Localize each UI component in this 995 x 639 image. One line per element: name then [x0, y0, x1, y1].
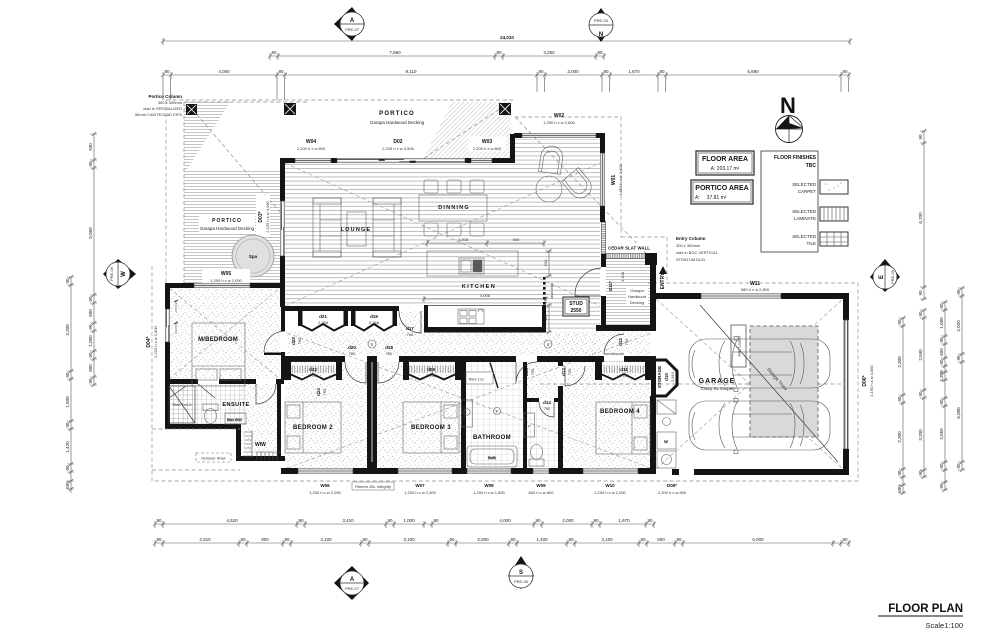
svg-text:500: 500 — [897, 485, 902, 493]
svg-text:6,000: 6,000 — [956, 407, 961, 419]
svg-text:d14: d14 — [543, 400, 551, 405]
svg-text:4,520: 4,520 — [226, 518, 238, 523]
svg-text:3,410: 3,410 — [342, 518, 354, 523]
svg-text:900: 900 — [513, 237, 520, 242]
svg-text:TILE: TILE — [806, 241, 816, 246]
svg-text:W07: W07 — [415, 483, 425, 488]
svg-text:450: 450 — [543, 314, 548, 321]
svg-text:90: 90 — [156, 537, 162, 542]
svg-text:S: S — [547, 342, 550, 347]
svg-text:1,400: 1,400 — [536, 537, 548, 542]
svg-text:90: 90 — [88, 161, 93, 167]
svg-text:BATHROOM: BATHROOM — [473, 435, 511, 441]
svg-text:2,300: 2,300 — [897, 431, 902, 443]
svg-text:d18: d18 — [385, 345, 393, 350]
svg-text:1,200 h x w 2,090: 1,200 h x w 2,090 — [309, 490, 341, 495]
svg-text:2,768: 2,768 — [318, 320, 329, 325]
svg-text:SELECTED: SELECTED — [792, 182, 817, 187]
svg-text:d19: d19 — [370, 314, 378, 319]
svg-text:90: 90 — [647, 518, 653, 523]
svg-text:Bsn 900: Bsn 900 — [461, 405, 466, 420]
svg-text:PRE-07: PRE-07 — [345, 586, 360, 591]
svg-text:CARPET: CARPET — [798, 189, 817, 194]
svg-text:d13: d13 — [561, 368, 566, 376]
svg-text:4,000: 4,000 — [499, 518, 511, 523]
svg-text:600: 600 — [543, 259, 548, 266]
svg-text:90: 90 — [640, 537, 646, 542]
svg-text:2,768: 2,768 — [369, 320, 380, 325]
svg-text:2,760: 2,760 — [308, 373, 319, 378]
svg-text:D02: D02 — [393, 139, 402, 145]
svg-text:4,006: 4,006 — [480, 293, 491, 298]
svg-text:90: 90 — [842, 69, 848, 74]
svg-text:90: 90 — [510, 537, 516, 542]
svg-text:580 h x w 2,800: 580 h x w 2,800 — [741, 287, 770, 292]
svg-text:2,225 h x w 3,060: 2,225 h x w 3,060 — [265, 200, 270, 232]
svg-text:A: A — [350, 577, 355, 583]
svg-text:S: S — [519, 570, 523, 576]
svg-text:3,100: 3,100 — [601, 537, 613, 542]
svg-text:90: 90 — [278, 69, 284, 74]
svg-text:clad in BGC VERTICAL: clad in BGC VERTICAL — [676, 250, 719, 255]
svg-text:ENSUITE: ENSUITE — [222, 402, 249, 408]
svg-text:760: 760 — [386, 351, 393, 356]
svg-text:Bath: Bath — [488, 455, 496, 460]
svg-text:1,200 h x w 2,000: 1,200 h x w 2,000 — [210, 278, 242, 283]
svg-text:1,208: 1,208 — [458, 237, 469, 242]
svg-text:STRATUM DUO: STRATUM DUO — [676, 257, 705, 262]
svg-text:D04*: D04* — [146, 336, 152, 347]
svg-text:90: 90 — [918, 134, 923, 140]
svg-text:d15: d15 — [524, 368, 529, 376]
svg-text:d17: d17 — [406, 326, 414, 331]
svg-text:M/BEDROOM: M/BEDROOM — [198, 337, 238, 343]
svg-text:7,860: 7,860 — [389, 50, 401, 55]
svg-text:W10: W10 — [605, 483, 615, 488]
svg-text:600: 600 — [657, 537, 665, 542]
svg-text:90: 90 — [939, 483, 944, 489]
svg-text:90: 90 — [65, 278, 70, 284]
svg-text:90: 90 — [387, 518, 393, 523]
svg-text:Outdoor Shwr: Outdoor Shwr — [201, 456, 226, 461]
svg-text:1,200 h x w 2,000: 1,200 h x w 2,000 — [594, 490, 626, 495]
svg-text:90: 90 — [603, 69, 609, 74]
svg-text:2,590: 2,590 — [918, 349, 923, 361]
svg-text:clad in SPECIALIZED: clad in SPECIALIZED — [143, 106, 182, 111]
svg-text:5,060: 5,060 — [88, 227, 93, 239]
svg-text:Decking: Decking — [630, 300, 644, 305]
svg-text:A: A — [350, 18, 355, 24]
svg-text:90: 90 — [897, 319, 902, 325]
svg-text:1,420: 1,420 — [65, 441, 70, 453]
svg-text:90: 90 — [156, 518, 162, 523]
svg-text:760: 760 — [322, 388, 327, 395]
svg-text:2,020: 2,020 — [956, 320, 961, 332]
svg-text:2,910: 2,910 — [199, 537, 211, 542]
svg-text:6,690: 6,690 — [747, 69, 759, 74]
svg-text:Spa: Spa — [249, 254, 258, 259]
svg-text:1,000: 1,000 — [88, 335, 93, 347]
svg-text:W: W — [121, 271, 127, 277]
svg-text:Tiled 1x1.6: Tiled 1x1.6 — [172, 402, 192, 407]
svg-text:2,225 h x w 4,506: 2,225 h x w 4,506 — [382, 146, 414, 151]
svg-text:Bsn 750: Bsn 750 — [523, 417, 528, 432]
svg-text:STUD: STUD — [569, 301, 583, 307]
svg-text:S: S — [371, 342, 374, 347]
svg-text:2,760: 2,760 — [426, 373, 437, 378]
svg-text:LAMINATE: LAMINATE — [794, 216, 816, 221]
svg-text:W06: W06 — [320, 483, 330, 488]
svg-text:90: 90 — [956, 355, 961, 361]
svg-text:1,600: 1,600 — [65, 396, 70, 408]
svg-text:1,000: 1,000 — [939, 317, 944, 329]
svg-text:d20: d20 — [348, 345, 356, 350]
svg-text:2,000: 2,000 — [562, 518, 574, 523]
svg-text:90: 90 — [918, 290, 923, 296]
svg-text:SELECTED: SELECTED — [792, 234, 817, 239]
svg-text:90: 90 — [676, 537, 682, 542]
svg-text:GARAGE: GARAGE — [699, 378, 736, 385]
svg-text:4,000: 4,000 — [218, 69, 230, 74]
svg-text:1,670: 1,670 — [618, 518, 630, 523]
svg-text:stud wall: stud wall — [549, 283, 554, 299]
svg-text:90: 90 — [164, 69, 170, 74]
svg-text:90: 90 — [65, 372, 70, 378]
svg-text:2,050: 2,050 — [939, 428, 944, 440]
svg-text:90: 90 — [535, 518, 541, 523]
svg-text:2,300: 2,300 — [897, 356, 902, 368]
svg-text:760: 760 — [544, 406, 551, 411]
svg-text:90: 90 — [918, 470, 923, 476]
svg-text:W02: W02 — [554, 113, 565, 119]
svg-text:90: 90 — [362, 537, 368, 542]
svg-text:DINNING: DINNING — [438, 205, 470, 211]
svg-text:FLOOR FINISHES: FLOOR FINISHES — [774, 155, 817, 161]
svg-text:800 h x w 600: 800 h x w 600 — [529, 490, 555, 495]
svg-text:90: 90 — [939, 303, 944, 309]
svg-text:E: E — [879, 275, 885, 279]
svg-text:D11*: D11* — [608, 281, 613, 291]
svg-text:90: 90 — [284, 537, 290, 542]
svg-text:90: 90 — [298, 518, 304, 523]
svg-text:3,100: 3,100 — [403, 537, 415, 542]
svg-text:90: 90 — [88, 352, 93, 358]
svg-text:W: W — [664, 439, 668, 444]
svg-text:2,225 h x w 2,800: 2,225 h x w 2,800 — [153, 325, 158, 357]
svg-text:PORTICO: PORTICO — [212, 218, 242, 224]
svg-text:KITCHEN: KITCHEN — [462, 284, 496, 290]
svg-text:90: 90 — [956, 463, 961, 469]
svg-text:2550: 2550 — [570, 308, 581, 314]
svg-text:N: N — [599, 32, 603, 38]
svg-text:BEDROOM 3: BEDROOM 3 — [411, 425, 451, 431]
svg-text:90: 90 — [842, 537, 848, 542]
svg-text:d24: d24 — [316, 388, 321, 396]
svg-text:790: 790 — [624, 338, 629, 345]
svg-text:1,670: 1,670 — [628, 69, 640, 74]
svg-text:Attic Ladder: Attic Ladder — [737, 335, 742, 357]
svg-text:Tiled 1x1: Tiled 1x1 — [468, 377, 485, 382]
svg-text:d09: d09 — [427, 367, 435, 372]
svg-text:90: 90 — [88, 324, 93, 330]
svg-text:d23: d23 — [291, 337, 296, 345]
svg-text:Crazy XL Carpet: Crazy XL Carpet — [700, 386, 734, 391]
svg-text:90: 90 — [88, 378, 93, 384]
svg-text:PORTICO: PORTICO — [379, 111, 415, 117]
svg-text:90: 90 — [918, 391, 923, 397]
svg-text:Entry Column: Entry Column — [676, 236, 706, 241]
svg-text:90: 90 — [65, 422, 70, 428]
svg-text:D06*: D06* — [862, 375, 868, 386]
svg-text:90: 90 — [939, 463, 944, 469]
svg-text:300 x 300mm: 300 x 300mm — [158, 100, 183, 105]
svg-text:90: 90 — [956, 289, 961, 295]
svg-text:N: N — [780, 93, 796, 118]
svg-text:PORTICO AREA: PORTICO AREA — [695, 185, 748, 192]
svg-text:90: 90 — [240, 537, 246, 542]
svg-text:W09: W09 — [536, 483, 546, 488]
svg-text:6,000: 6,000 — [752, 537, 764, 542]
svg-text:1,350 h x w 2,400: 1,350 h x w 2,400 — [618, 163, 623, 195]
svg-text:2,200 h x w 800: 2,200 h x w 800 — [297, 146, 326, 151]
svg-text:760: 760 — [297, 337, 302, 344]
svg-text:760: 760 — [530, 368, 535, 375]
svg-text:90: 90 — [918, 311, 923, 317]
svg-text:PRE-06: PRE-06 — [514, 579, 529, 584]
svg-text:1,200 h x w 2,300: 1,200 h x w 2,300 — [404, 490, 436, 495]
svg-text:766: 766 — [407, 332, 414, 337]
svg-text:90: 90 — [659, 69, 665, 74]
svg-text:600: 600 — [88, 364, 93, 372]
svg-text:STORAGE: STORAGE — [657, 366, 662, 388]
svg-text:W03: W03 — [482, 139, 493, 145]
svg-text:d22: d22 — [309, 367, 317, 372]
svg-text:ENTRY: ENTRY — [660, 272, 666, 289]
svg-text:90: 90 — [897, 470, 902, 476]
svg-text:d10: d10 — [664, 373, 669, 381]
svg-text:24,010: 24,010 — [500, 35, 514, 40]
svg-text:900: 900 — [261, 537, 269, 542]
svg-text:1,250 h x w 2,800: 1,250 h x w 2,800 — [543, 120, 575, 125]
svg-text:600: 600 — [939, 348, 944, 356]
svg-text:SELECTED: SELECTED — [792, 209, 817, 214]
svg-text:3,100: 3,100 — [320, 537, 332, 542]
svg-text:FLOOR PLAN: FLOOR PLAN — [888, 603, 963, 615]
svg-text:Garapa Hardwood Decking: Garapa Hardwood Decking — [200, 226, 255, 231]
svg-text:760: 760 — [349, 351, 356, 356]
svg-text:W01: W01 — [611, 175, 617, 186]
svg-text:W05: W05 — [221, 271, 232, 277]
svg-text:90: 90 — [88, 296, 93, 302]
svg-text:90: 90 — [939, 359, 944, 365]
svg-text:50mm CAVITECLAD EIFS: 50mm CAVITECLAD EIFS — [135, 112, 182, 117]
svg-text:BEDROOM 2: BEDROOM 2 — [293, 425, 333, 431]
svg-text:Scale1:100: Scale1:100 — [925, 621, 963, 630]
svg-text:Portico Column: Portico Column — [149, 94, 183, 99]
svg-text:90: 90 — [568, 537, 574, 542]
svg-text:FLOOR AREA: FLOOR AREA — [702, 156, 748, 163]
svg-text:d21: d21 — [319, 314, 327, 319]
svg-text:2,200 h x w 900: 2,200 h x w 900 — [658, 490, 687, 495]
svg-text:D05*: D05* — [667, 483, 677, 488]
svg-text:2,000: 2,000 — [567, 69, 579, 74]
svg-text:90: 90 — [597, 50, 603, 55]
svg-text:PRE-06: PRE-06 — [109, 266, 114, 281]
svg-text:930: 930 — [88, 143, 93, 151]
svg-text:760: 760 — [567, 368, 572, 375]
svg-text:300 x 300mm: 300 x 300mm — [676, 243, 701, 248]
svg-text:LOUNGE: LOUNGE — [341, 227, 372, 233]
svg-text:90: 90 — [433, 518, 439, 523]
svg-text:Rheem 26L Integrity: Rheem 26L Integrity — [355, 484, 391, 489]
svg-text:Bsn 900: Bsn 900 — [227, 417, 242, 422]
svg-text:TBC: TBC — [806, 163, 817, 169]
svg-text:d11: d11 — [620, 367, 628, 372]
svg-text:PRE-05: PRE-05 — [890, 269, 895, 284]
svg-text:500: 500 — [65, 481, 70, 489]
svg-text:CEDAR SLAT WALL: CEDAR SLAT WALL — [608, 246, 650, 251]
svg-text:PRE-07: PRE-07 — [345, 27, 360, 32]
svg-text:A: 203.17 m²: A: 203.17 m² — [711, 166, 740, 172]
svg-text:90: 90 — [496, 50, 502, 55]
svg-text:90: 90 — [538, 69, 544, 74]
svg-text:3,200: 3,200 — [918, 429, 923, 441]
svg-text:9,110: 9,110 — [406, 69, 417, 74]
svg-text:PRE-05: PRE-05 — [594, 18, 609, 23]
svg-text:6,700: 6,700 — [918, 212, 923, 224]
svg-text:90: 90 — [897, 396, 902, 402]
svg-text:3,250: 3,250 — [543, 50, 555, 55]
svg-text:1,100: 1,100 — [620, 271, 625, 282]
svg-text:WIW: WIW — [255, 442, 266, 448]
svg-text:90: 90 — [449, 537, 455, 542]
svg-text:90: 90 — [593, 518, 599, 523]
svg-text:2,768: 2,768 — [619, 373, 630, 378]
svg-text:90: 90 — [65, 465, 70, 471]
svg-text:2,200 h x w 800: 2,200 h x w 800 — [473, 146, 502, 151]
svg-text:90: 90 — [939, 337, 944, 343]
svg-text:90: 90 — [271, 50, 277, 55]
svg-text:Garapa: Garapa — [630, 288, 644, 293]
svg-text:Garapa Hardwood Decking: Garapa Hardwood Decking — [370, 120, 425, 125]
svg-text:2,810: 2,810 — [670, 371, 675, 382]
svg-text:BEDROOM 4: BEDROOM 4 — [600, 409, 640, 415]
svg-text:600: 600 — [88, 309, 93, 317]
svg-text:D03*: D03* — [258, 211, 264, 222]
svg-text:1,200 h x w 1,600: 1,200 h x w 1,600 — [473, 490, 505, 495]
svg-text:1,300: 1,300 — [939, 370, 944, 382]
svg-text:W04: W04 — [306, 139, 317, 145]
svg-text:90: 90 — [939, 399, 944, 405]
svg-text:W08: W08 — [484, 483, 494, 488]
svg-text:2,160 h x w 4,880: 2,160 h x w 4,880 — [869, 364, 874, 396]
svg-text:Hardwood: Hardwood — [628, 294, 646, 299]
svg-text:2,000: 2,000 — [477, 537, 489, 542]
svg-text:d12: d12 — [618, 338, 623, 346]
svg-text:3,200: 3,200 — [65, 324, 70, 336]
svg-text:A: 37.81 m²: A: 37.81 m² — [695, 195, 727, 201]
svg-text:1,000: 1,000 — [403, 518, 415, 523]
